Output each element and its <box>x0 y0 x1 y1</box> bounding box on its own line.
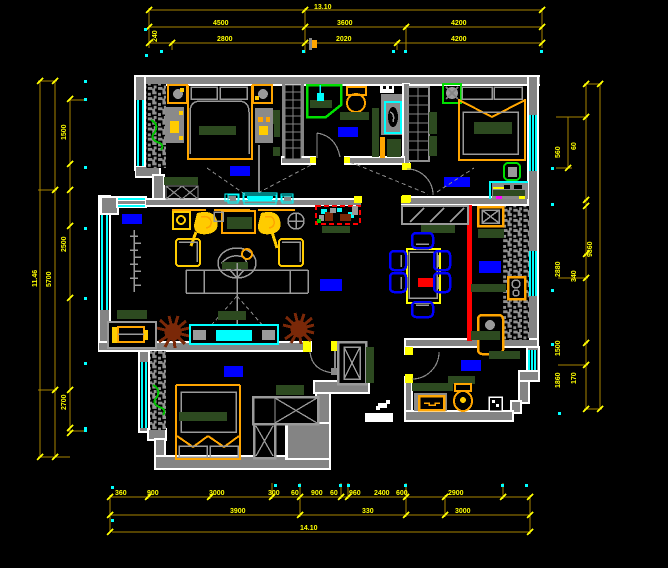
svg-text:60: 60 <box>571 142 578 150</box>
svg-text:600: 600 <box>396 490 408 497</box>
svg-text:240: 240 <box>152 30 159 42</box>
svg-text:9860: 9860 <box>587 241 594 257</box>
svg-text:2500: 2500 <box>61 236 68 252</box>
svg-text:5700: 5700 <box>46 271 53 287</box>
svg-text:11.46: 11.46 <box>32 270 39 287</box>
svg-text:4500: 4500 <box>213 20 229 27</box>
svg-text:2900: 2900 <box>448 490 464 497</box>
svg-text:3000: 3000 <box>209 490 225 497</box>
svg-text:1860: 1860 <box>555 372 562 388</box>
svg-text:2800: 2800 <box>217 36 233 43</box>
svg-text:3600: 3600 <box>337 20 353 27</box>
svg-text:1500: 1500 <box>61 124 68 140</box>
svg-text:960: 960 <box>349 490 361 497</box>
svg-text:14.10: 14.10 <box>300 525 318 532</box>
svg-text:3000: 3000 <box>455 508 471 515</box>
svg-text:900: 900 <box>311 490 323 497</box>
svg-text:4200: 4200 <box>451 36 467 43</box>
svg-text:900: 900 <box>147 490 159 497</box>
svg-text:360: 360 <box>115 490 127 497</box>
svg-text:340: 340 <box>571 270 578 282</box>
svg-text:2700: 2700 <box>61 394 68 410</box>
svg-text:1500: 1500 <box>555 340 562 356</box>
svg-text:2400: 2400 <box>374 490 390 497</box>
svg-text:60: 60 <box>330 490 338 497</box>
svg-text:330: 330 <box>362 508 374 515</box>
svg-text:60: 60 <box>291 490 299 497</box>
svg-text:4200: 4200 <box>451 20 467 27</box>
svg-text:2020: 2020 <box>336 36 352 43</box>
svg-text:560: 560 <box>555 146 562 158</box>
svg-text:170: 170 <box>571 372 578 384</box>
svg-text:3900: 3900 <box>230 508 246 515</box>
svg-text:300: 300 <box>268 490 280 497</box>
svg-text:13.10: 13.10 <box>314 4 332 11</box>
svg-text:2880: 2880 <box>555 261 562 277</box>
